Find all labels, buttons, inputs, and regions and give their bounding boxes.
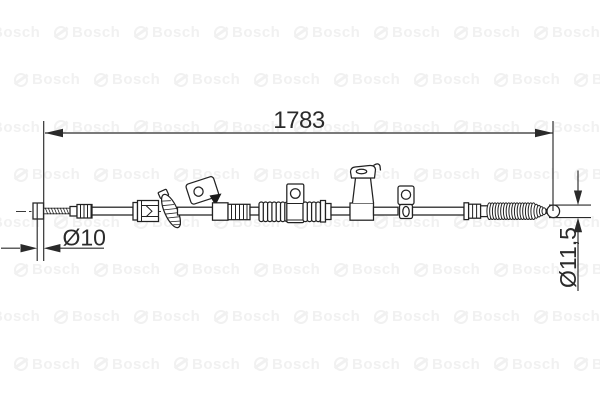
arrowhead-left [45,129,63,138]
cable-assembly [33,164,560,230]
arrowhead-down [574,191,582,206]
arrowhead-right [535,129,553,138]
clamp-2 [350,203,374,220]
conduit-segment-1 [92,207,133,215]
socket-fitting [133,201,159,222]
adjuster-ribbed-sleeve [77,205,92,219]
conduit-segment-2 [178,207,213,215]
arrowhead-left-pointing [44,244,61,252]
dimension-right-diameter: Ø11,5 [549,171,591,292]
mounting-bracket-3 [398,186,414,219]
threaded-end-fitting [464,203,488,220]
inner-cable-left [44,208,71,214]
left-diameter-value: Ø10 [63,225,106,251]
mounting-bracket-2 [351,164,381,203]
ribbed-coupler [228,204,250,219]
conduit-segment-3 [250,207,259,215]
arrowhead-right-pointing [21,244,38,252]
right-diameter-value: Ø11,5 [555,227,581,288]
overall-length-value: 1783 [273,107,325,134]
adjuster-sleeve [70,207,77,217]
conduit-segment-5 [374,207,399,215]
coil-spring [487,203,546,220]
bellows-left [259,202,289,222]
clamp-1 [213,203,229,220]
conduit-segment-4 [331,207,350,215]
bellows-right [303,201,331,223]
conduit-segment-6 [413,207,465,215]
brake-cable-diagram: 1783 Ø10 Ø11,5 [0,0,600,400]
center-bracket-plate [287,184,304,223]
technical-drawing-page: BoschBoschBoschBoschBoschBoschBoschBosch… [0,0,600,400]
left-barrel-nipple [33,203,44,219]
